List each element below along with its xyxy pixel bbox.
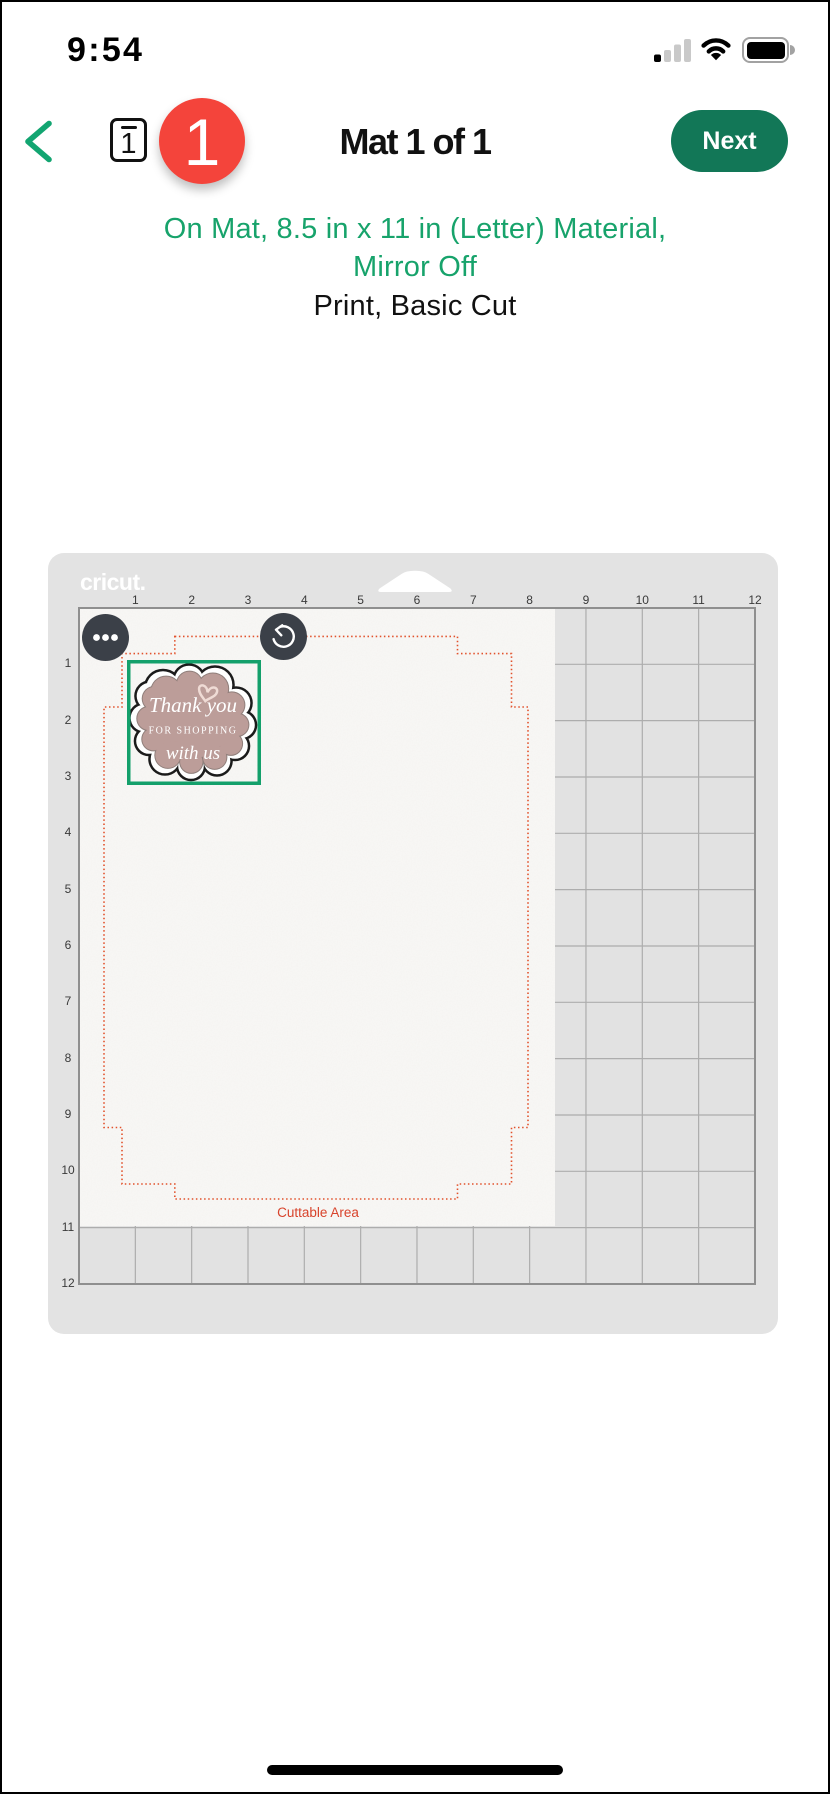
svg-text:Thank you: Thank you [149, 693, 237, 717]
svg-text:FOR SHOPPING: FOR SHOPPING [149, 726, 238, 737]
svg-text:with us: with us [166, 743, 220, 764]
